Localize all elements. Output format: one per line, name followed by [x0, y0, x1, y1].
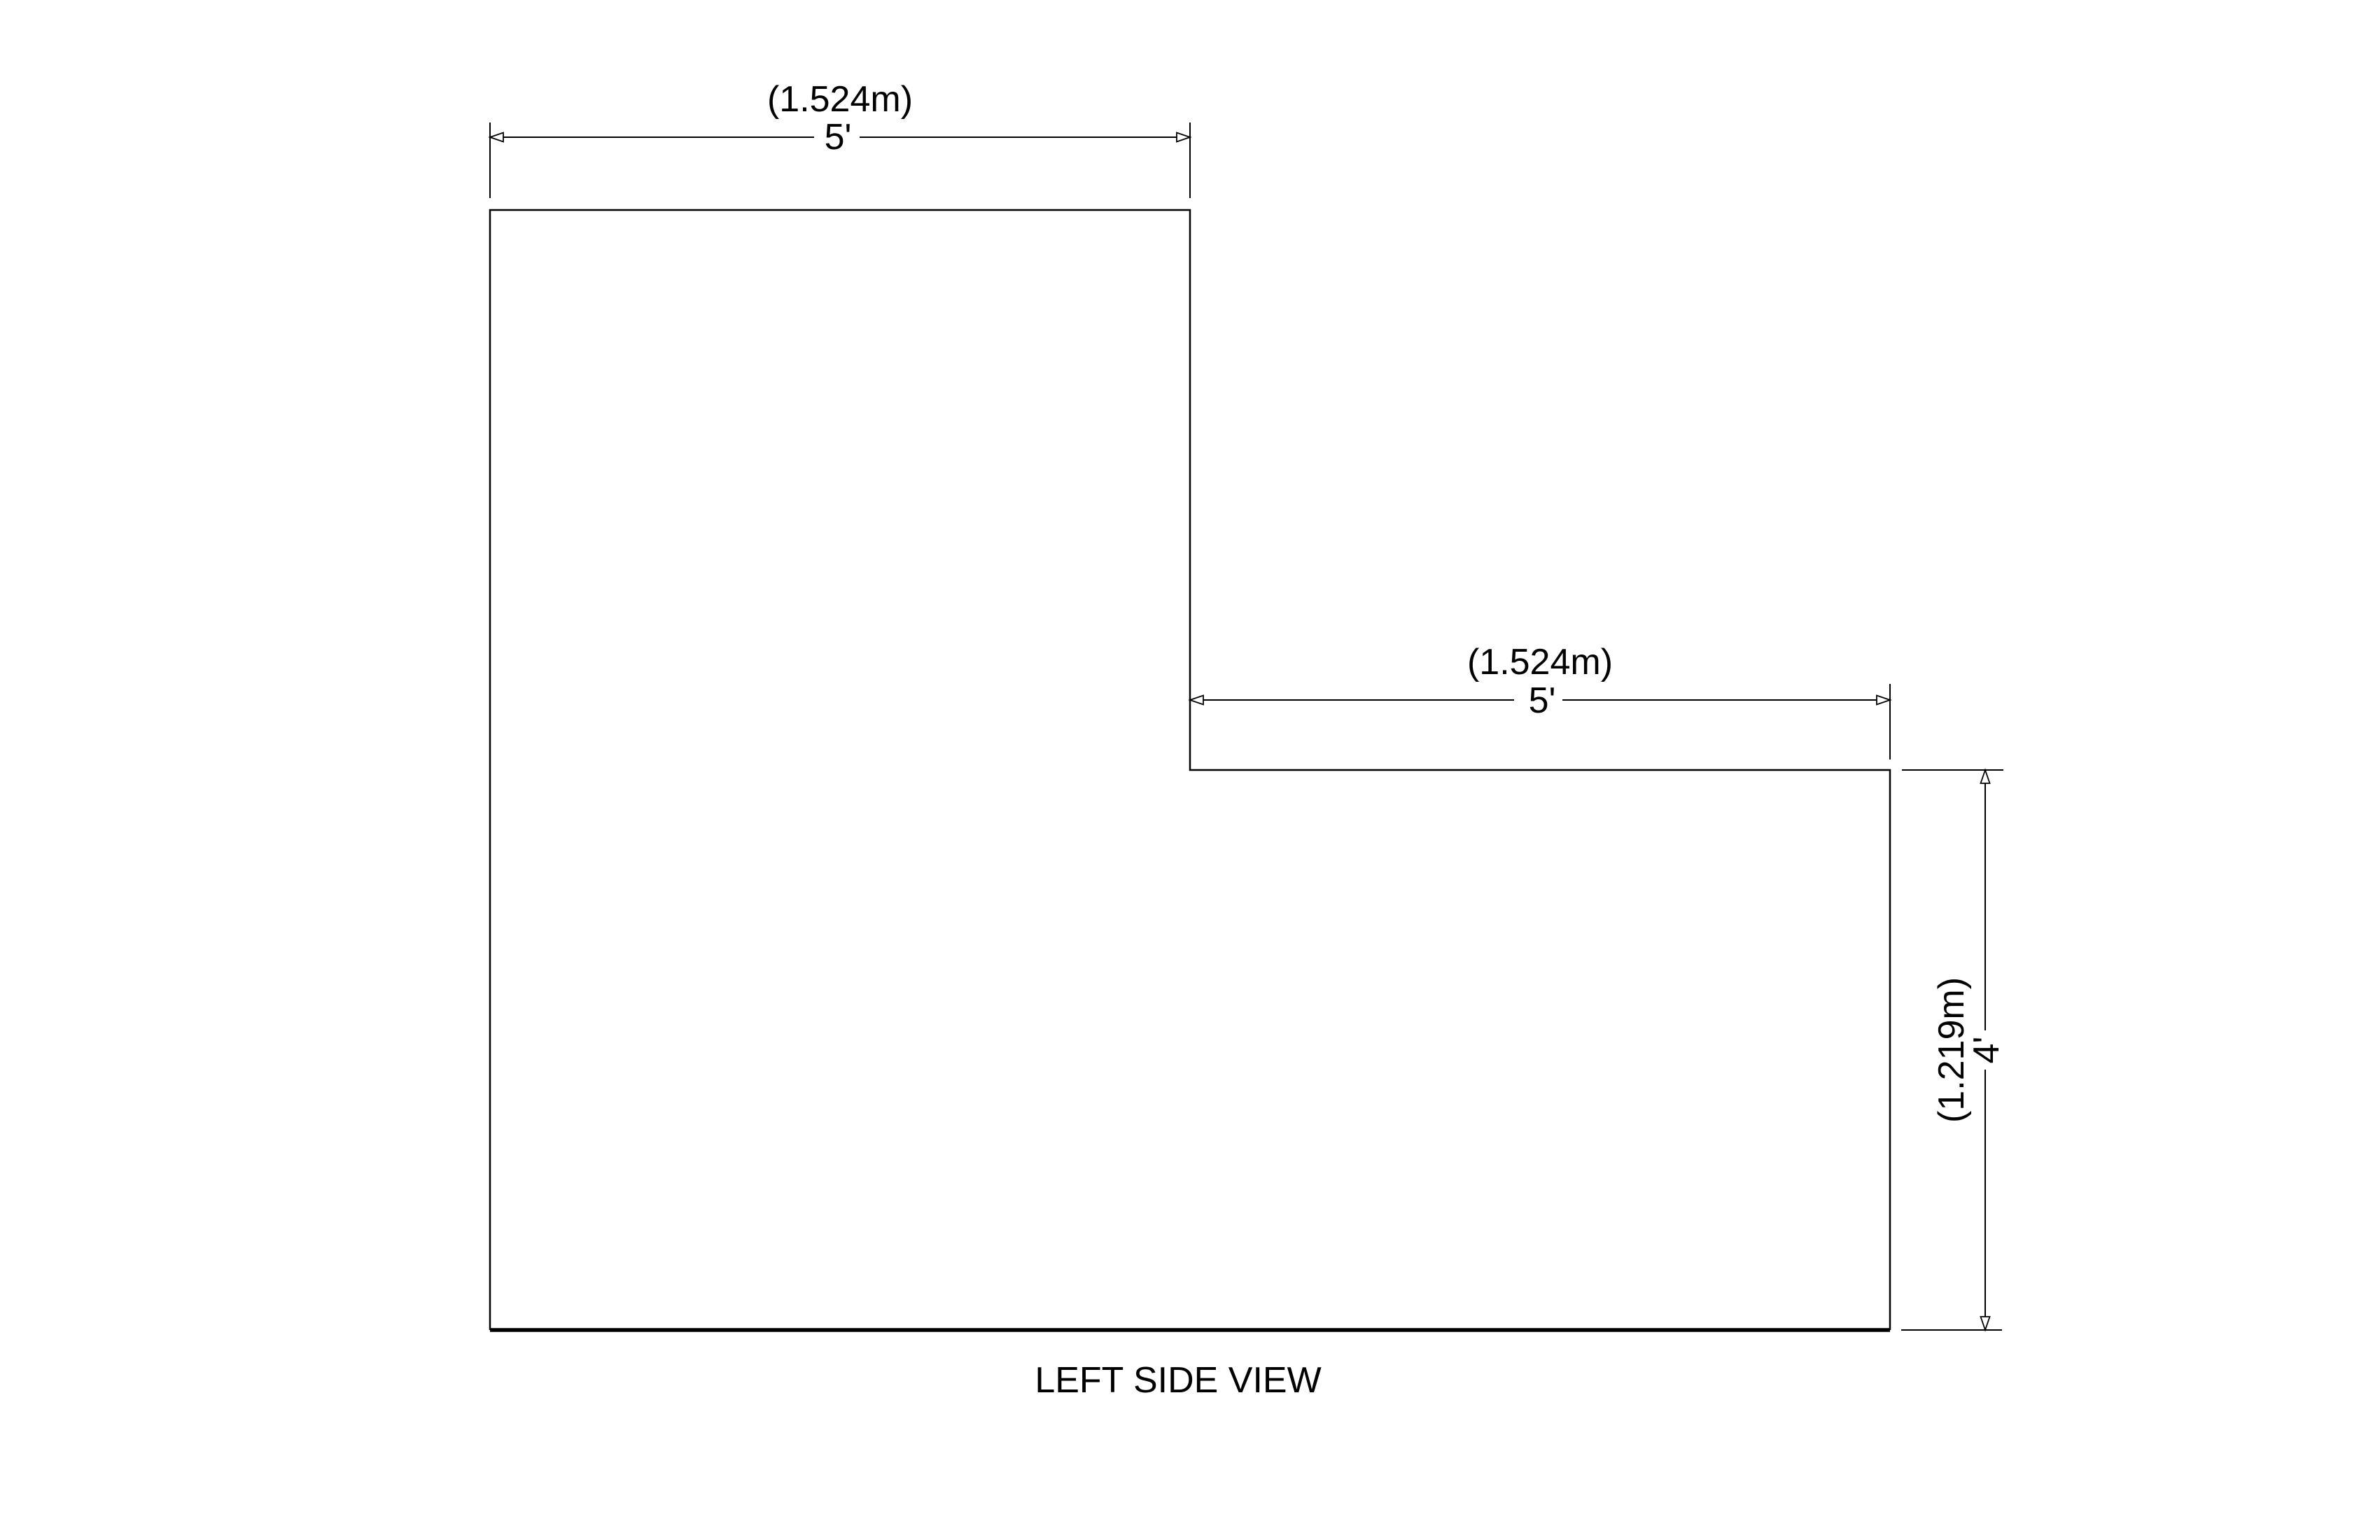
cad-drawing-canvas: (1.524m) 5' (1.524m) 5' (1.219m) 4' LEFT…	[0, 0, 2380, 1540]
dimension-top-width: (1.524m) 5'	[490, 79, 1190, 198]
arrowhead-left-icon	[490, 133, 503, 142]
profile-edge-path	[490, 210, 1890, 1330]
arrowhead-down-icon	[1981, 1317, 1990, 1330]
view-title: LEFT SIDE VIEW	[1035, 1360, 1321, 1401]
l-profile-outline	[490, 210, 1890, 1330]
dim-right-imperial-label: 4'	[1966, 1037, 2007, 1064]
dim-step-metric-label: (1.524m)	[1467, 642, 1613, 682]
arrowhead-right-icon	[1177, 133, 1190, 142]
dimension-right-height: (1.219m) 4'	[1901, 770, 2007, 1330]
dim-top-imperial-label: 5'	[825, 117, 852, 157]
left-side-view-drawing: (1.524m) 5' (1.524m) 5' (1.219m) 4' LEFT…	[0, 0, 2380, 1540]
dim-top-metric-label: (1.524m)	[767, 79, 913, 120]
arrowhead-up-icon	[1981, 770, 1990, 783]
dimension-step-width: (1.524m) 5'	[1190, 642, 1890, 759]
dim-step-imperial-label: 5'	[1529, 680, 1556, 721]
arrowhead-right-icon	[1877, 696, 1890, 705]
arrowhead-left-icon	[1190, 696, 1203, 705]
